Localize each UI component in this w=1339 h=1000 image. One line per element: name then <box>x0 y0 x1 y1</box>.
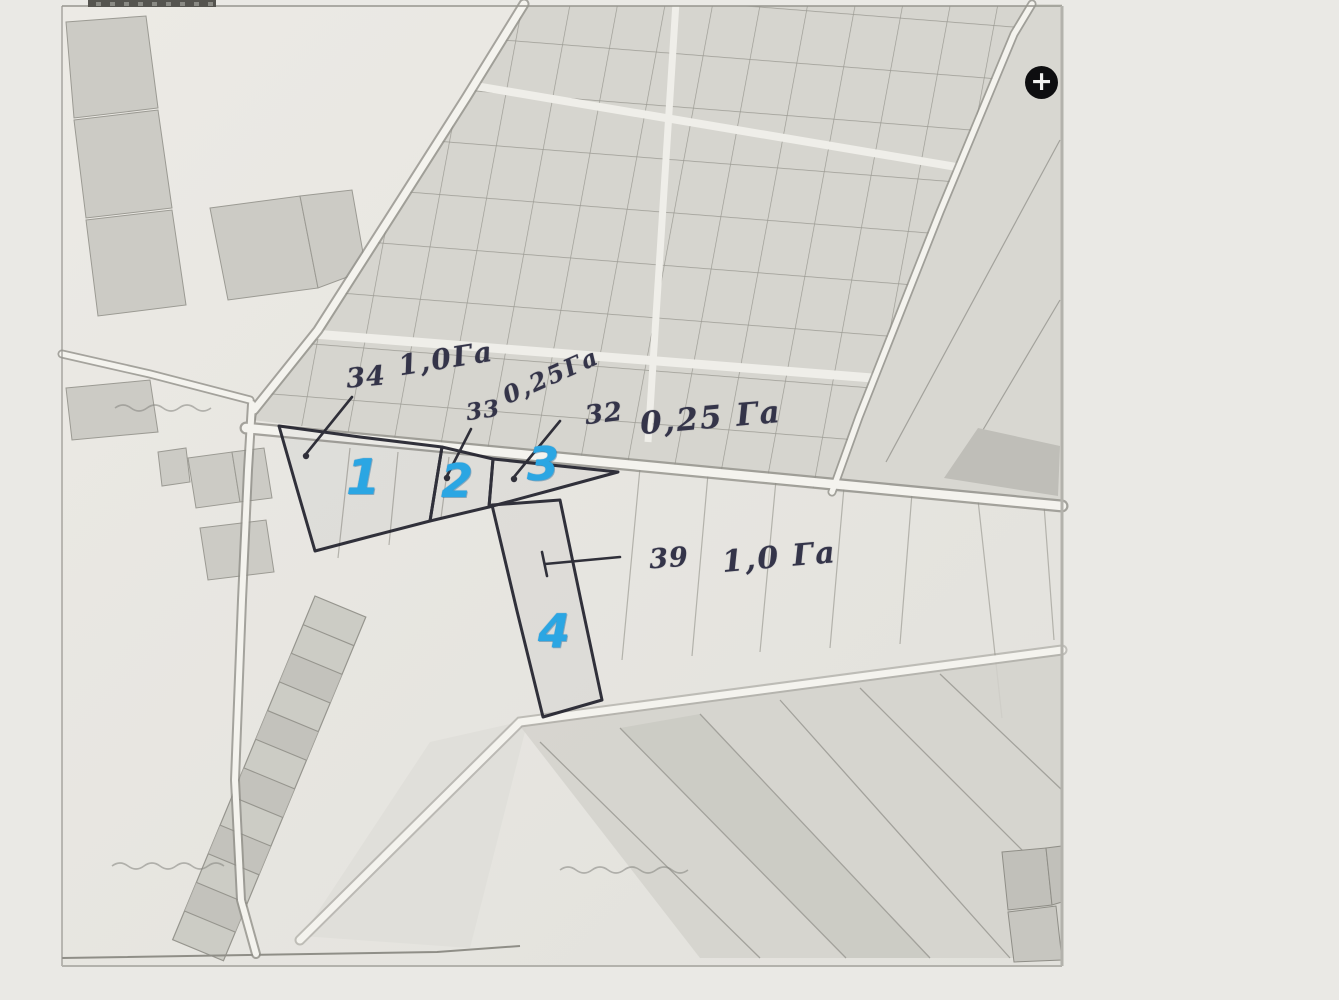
plot-number-3: 3 <box>527 441 559 487</box>
page-background: { "viewer": { "zoom_in_label": "+" }, "a… <box>0 0 1339 1000</box>
zoom-in-button[interactable]: + <box>1025 66 1058 99</box>
plot-number-1: 1 <box>346 453 380 502</box>
map-artwork <box>0 0 1339 1000</box>
plot-number-2: 2 <box>441 458 473 504</box>
top-edge-strip <box>88 0 216 7</box>
scanned-map-document[interactable]: 34 1,0Га 33 0,25Га 32 0,25 Га 39 1,0 Га … <box>0 0 1339 1000</box>
plus-icon: + <box>1030 68 1053 95</box>
plot-number-4: 4 <box>538 608 570 654</box>
